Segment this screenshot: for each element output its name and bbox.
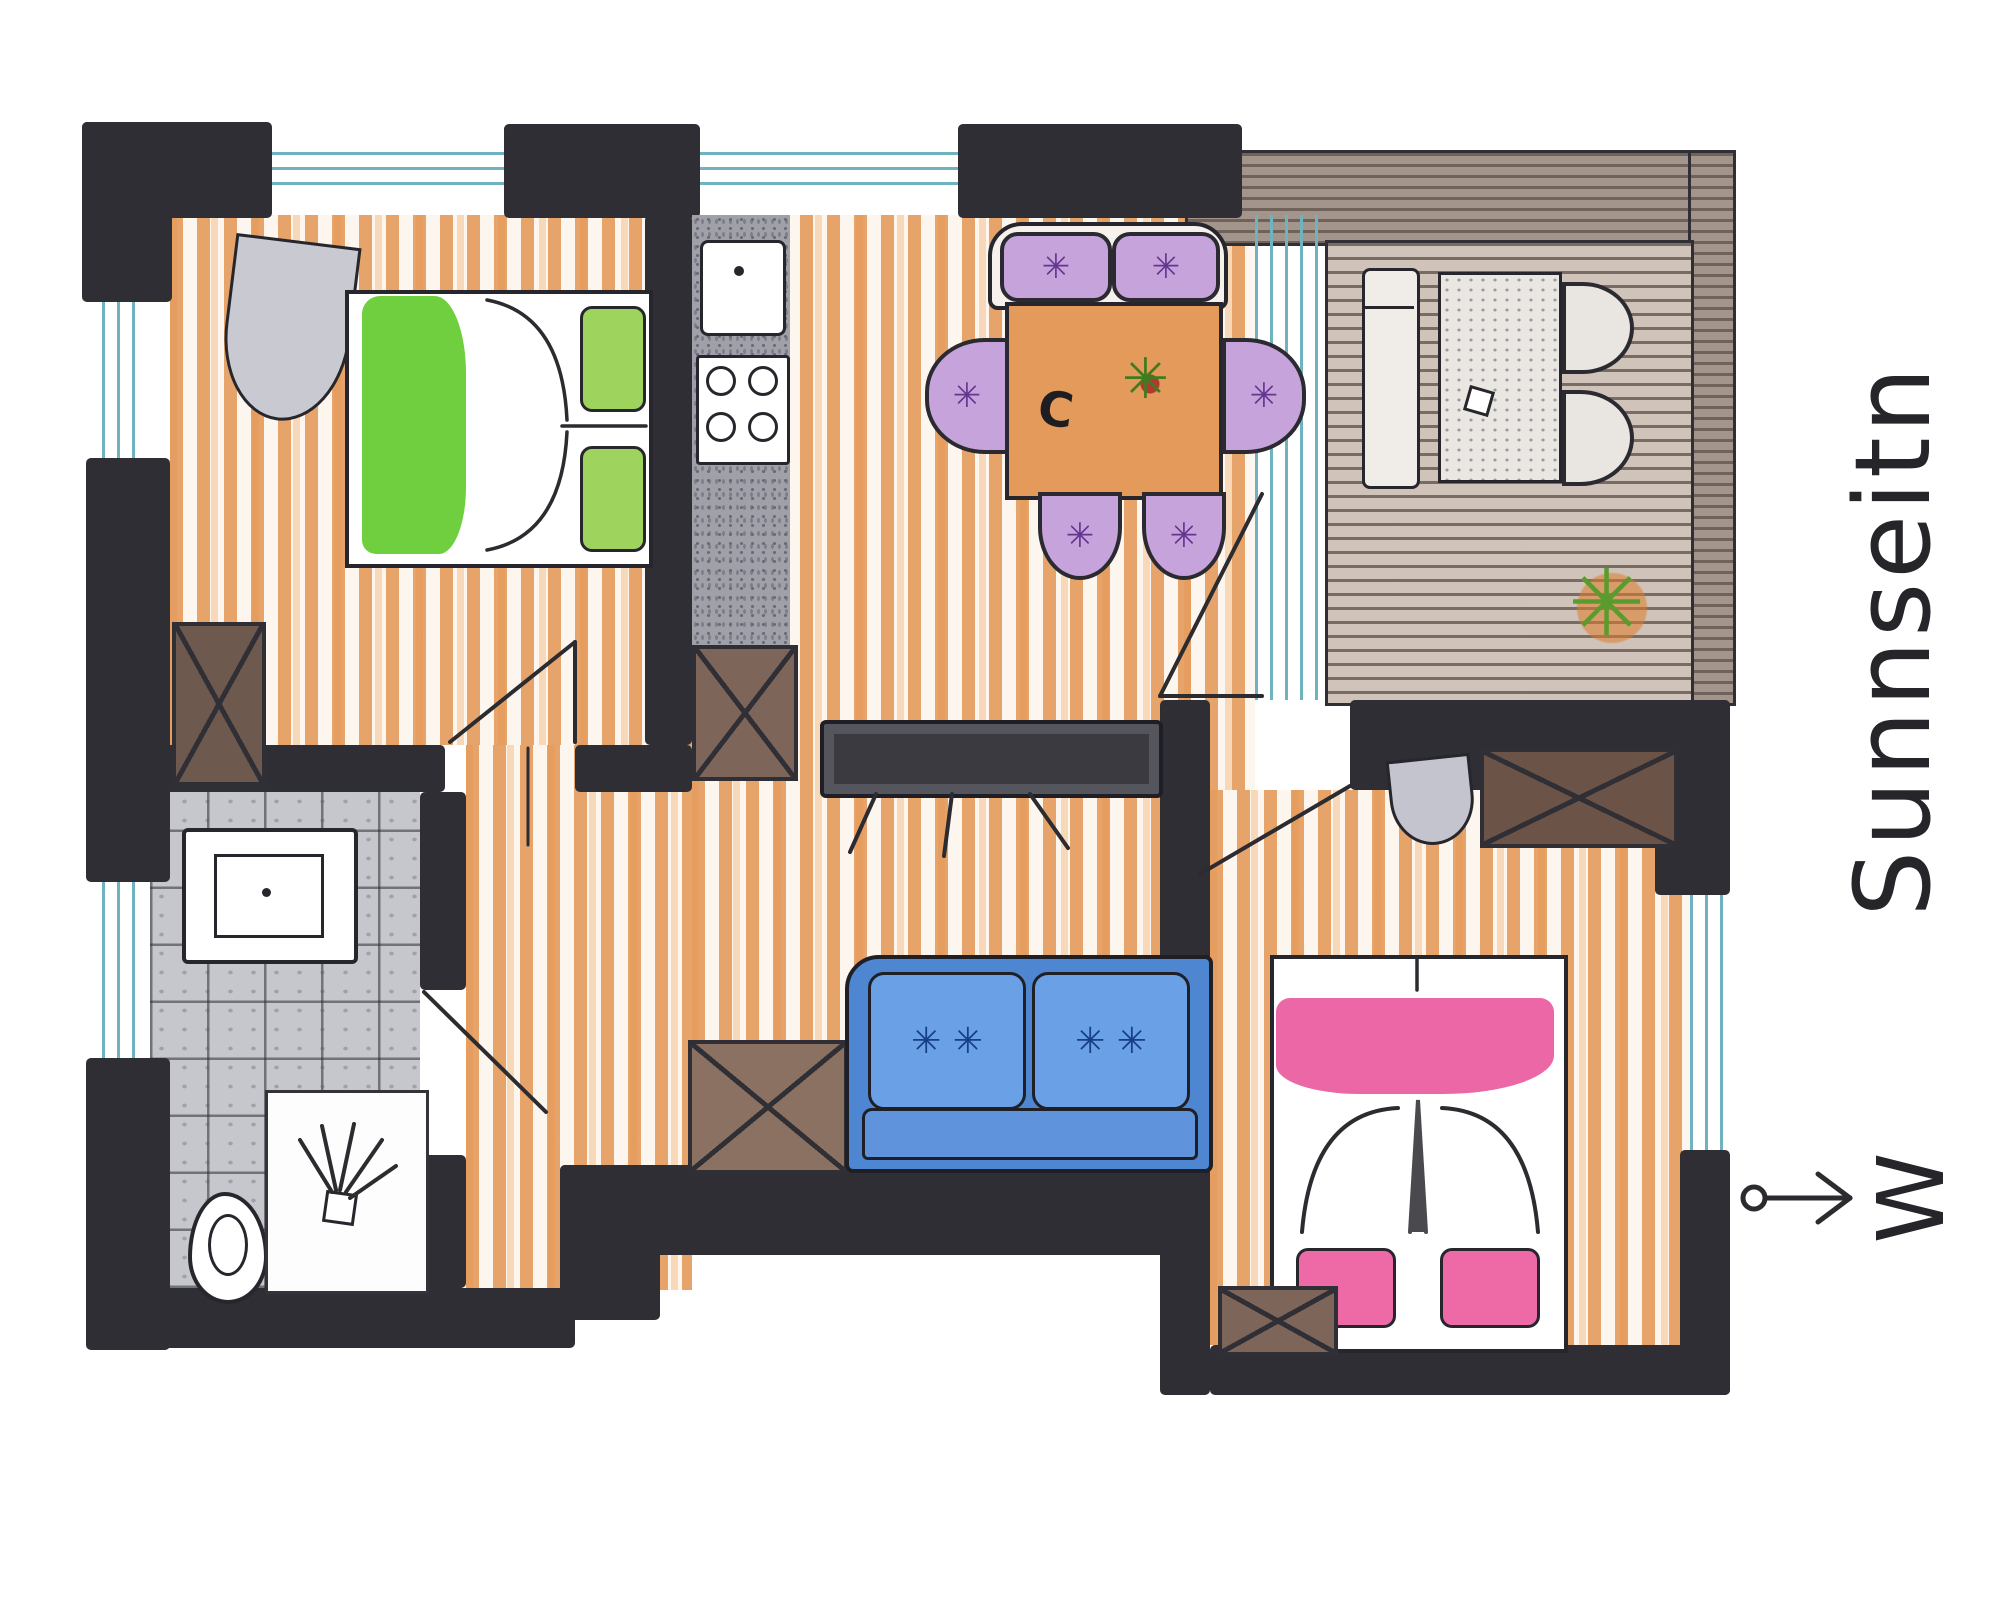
compass-west-letter: W [1860,1148,1964,1248]
drawn-lines [0,0,2000,1600]
floorplan-canvas: ✳ ✳ ✳ C ✳ ✳ ✳ ✳ [0,0,2000,1600]
plan-title: Sunnseitn [1832,363,1954,917]
